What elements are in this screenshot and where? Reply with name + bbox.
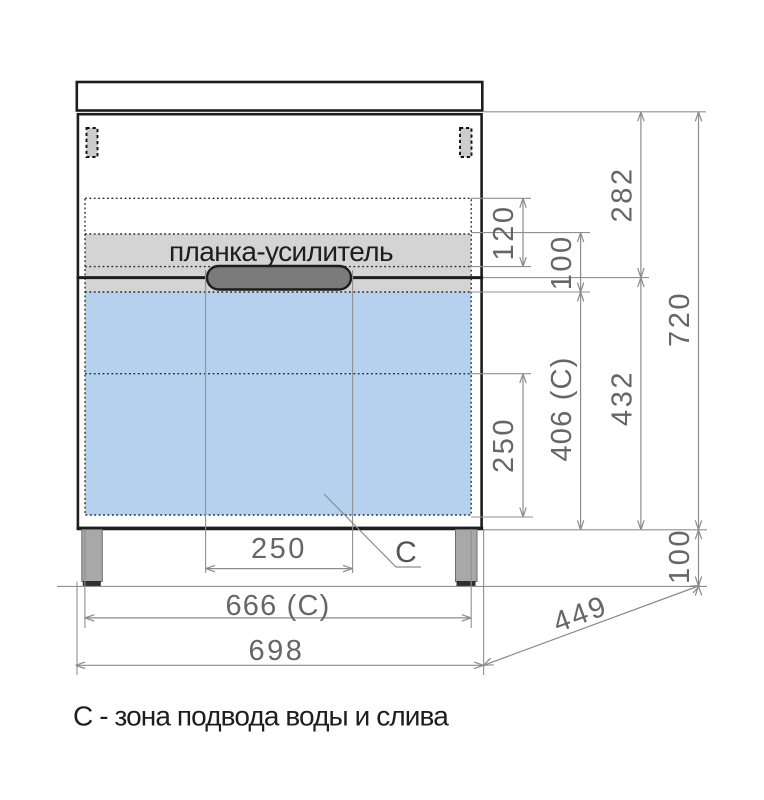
svg-text:666 (C): 666 (C) — [225, 590, 330, 622]
svg-text:100: 100 — [546, 234, 578, 290]
svg-text:698: 698 — [249, 635, 305, 667]
svg-text:432: 432 — [607, 370, 639, 426]
svg-text:100: 100 — [664, 528, 696, 584]
svg-text:планка-усилитель: планка-усилитель — [169, 236, 393, 267]
svg-text:406 (C): 406 (C) — [546, 356, 578, 461]
svg-text:120: 120 — [488, 205, 520, 261]
svg-text:250: 250 — [251, 533, 307, 565]
svg-text:720: 720 — [664, 291, 696, 347]
svg-text:282: 282 — [607, 167, 639, 223]
svg-text:С - зона подвода воды и слива: С - зона подвода воды и слива — [73, 701, 449, 732]
svg-text:250: 250 — [488, 417, 520, 473]
svg-text:C: C — [395, 536, 417, 569]
